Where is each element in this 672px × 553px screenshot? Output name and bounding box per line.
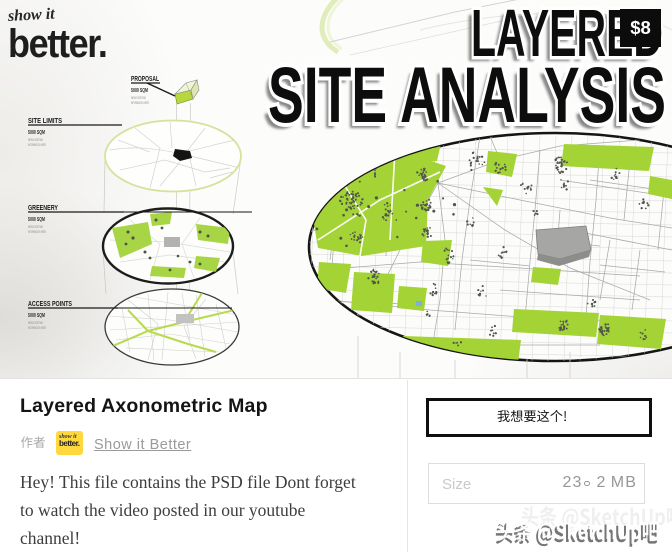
svg-text:NEW EXISTING: NEW EXISTING [28,321,43,325]
svg-text:PROPOSAL: PROPOSAL [131,76,160,83]
svg-text:NEW EXISTING: NEW EXISTING [28,225,43,229]
svg-text:NEW EXISTING: NEW EXISTING [28,138,43,142]
svg-text:5000 SQM: 5000 SQM [28,313,45,319]
svg-text:INFORMATION HERE: INFORMATION HERE [131,101,149,105]
svg-text:NEW EXISTING: NEW EXISTING [131,96,146,100]
svg-text:SITE ANALYSIS: SITE ANALYSIS [268,50,666,139]
svg-text:5000 SQM: 5000 SQM [28,217,45,223]
svg-text:SITE LIMITS: SITE LIMITS [28,118,62,125]
svg-text:5000 SQM: 5000 SQM [131,88,148,94]
svg-text:INFORMATION HERE: INFORMATION HERE [28,230,46,234]
svg-text:5000 SQM: 5000 SQM [28,130,45,136]
svg-text:INFORMATION HERE: INFORMATION HERE [28,326,46,330]
svg-text:ACCESS POINTS: ACCESS POINTS [28,301,72,308]
svg-text:INFORMATION HERE: INFORMATION HERE [28,143,46,147]
svg-text:GREENERY: GREENERY [28,205,58,212]
